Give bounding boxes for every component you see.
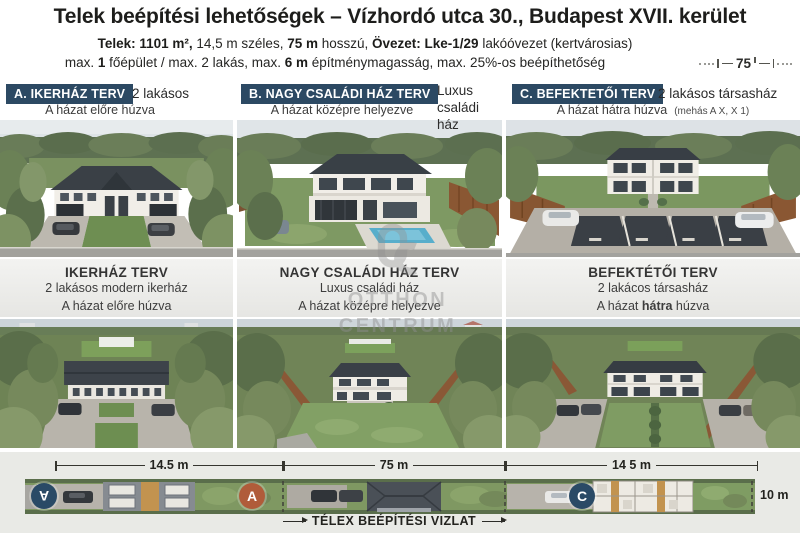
- plan-b-caption-line1: Luxus családi ház: [237, 280, 502, 298]
- caption-arrow-left: [283, 521, 306, 522]
- plan-b-header: B. NAGY CSALÁDI HÁZ TERV Luxus családi h…: [237, 80, 502, 120]
- plot-spec-line1: Telek: 1101 m², 14,5 m széles, 75 m hoss…: [0, 36, 730, 51]
- page-title: Telek beépítési lehetőségek – Vízhordó u…: [0, 5, 800, 29]
- plan-column-b: B. NAGY CSALÁDI HÁZ TERV Luxus családi h…: [237, 80, 502, 448]
- dotted-leader: [777, 63, 792, 65]
- plan-c-subline: A házat hátra húzva(mehás A X, X 1): [506, 103, 800, 117]
- dotted-leader: [699, 63, 714, 65]
- plan-column-a: A. IKERHÁZ TERV 2 lakásos A házat előre …: [0, 80, 233, 448]
- tick-mark: [773, 59, 775, 68]
- plot-strip-aerial-image: [25, 479, 755, 514]
- plan-c-tagline: 2 lakásos társasház: [658, 86, 777, 101]
- plan-a-caption: IKERHÁZ TERV 2 lakásos modern ikerház A …: [0, 257, 233, 319]
- dimension-depth-value: 10 m: [760, 488, 789, 502]
- dimension-middle-value: 75 m: [375, 458, 414, 472]
- plan-b-caption-title: NAGY CSALÁDI HÁZ TERV: [237, 265, 502, 280]
- siteplan-section: 14.5 m 75 m 14 5 m 10 m: [0, 450, 800, 533]
- dimension-line: [722, 63, 733, 64]
- plan-b-render-aerial: [237, 319, 502, 448]
- plan-c-render-street: [506, 120, 800, 257]
- plan-b-render-street: [237, 120, 502, 257]
- infographic-root: Telek beépítési lehetőségek – Vízhordó u…: [0, 0, 800, 533]
- tick-mark: [717, 59, 719, 68]
- plan-b-subline: A házat középre helyezve: [237, 103, 447, 117]
- dimension-value: 75: [736, 56, 751, 71]
- plan-c-caption-line2: A házat hátra húzva: [506, 298, 800, 316]
- plan-a-header: A. IKERHÁZ TERV 2 lakásos A házat előre …: [0, 80, 233, 120]
- plan-c-caption-title: BEFEKTÉTŐI TERV: [506, 265, 800, 280]
- siteplan-caption-text: TÉLEX BEÉPÍTÉSI VIZLAT: [312, 514, 476, 528]
- spec-bold: 6 m: [285, 55, 308, 70]
- plot-badge-a: A: [239, 483, 265, 509]
- plan-c-header: C. BEFEKTETŐI TERV 2 lakásos társasház A…: [506, 80, 800, 120]
- plan-b-badge: B. NAGY CSALÁDI HÁZ TERV: [241, 84, 438, 104]
- plan-column-c: C. BEFEKTETŐI TERV 2 lakásos társasház A…: [506, 80, 800, 448]
- plan-c-caption: BEFEKTÉTŐI TERV 2 lakácos társasház A há…: [506, 257, 800, 319]
- dimension-left-value: 14.5 m: [145, 458, 194, 472]
- dimension-right-segment: 14 5 m: [505, 465, 758, 480]
- plan-a-render-aerial: [0, 319, 233, 448]
- plot-badge-c: C: [569, 483, 595, 509]
- dimension-line: [759, 63, 770, 64]
- duplex-front-aerial-image: [0, 120, 233, 257]
- plot-badge-a-rotated: A: [31, 483, 57, 509]
- plan-b-caption-line2: A házat középre helyezve: [237, 298, 502, 316]
- plan-c-badge: C. BEFEKTETŐI TERV: [512, 84, 663, 104]
- plan-c-caption-line1: 2 lakácos társasház: [506, 280, 800, 298]
- siteplan-caption: TÉLEX BEÉPÍTÉSI VIZLAT: [283, 514, 505, 528]
- spec-bold: Telek: 1101 m²,: [98, 36, 193, 51]
- plan-a-tagline: 2 lakásos: [132, 86, 189, 101]
- investor-building-front-aerial-image: [506, 120, 800, 257]
- dimension-left-segment: 14.5 m: [55, 465, 283, 480]
- spec-bold: 75 m: [287, 36, 318, 51]
- caption-arrow-right: [482, 521, 505, 522]
- family-house-front-aerial-image: [237, 120, 502, 257]
- family-house-top-aerial-image: [237, 319, 502, 448]
- plan-a-subline: A házat előre húzva: [0, 103, 200, 117]
- plan-a-caption-line1: 2 lakásos modern ikerház: [0, 280, 233, 298]
- dimension-right-value: 14 5 m: [607, 458, 656, 472]
- plan-c-render-aerial: [506, 319, 800, 448]
- duplex-top-aerial-image: [0, 319, 233, 448]
- investor-building-top-aerial-image: [506, 319, 800, 448]
- plan-a-render-street: [0, 120, 233, 257]
- width-dimension-annotation: 75: [699, 56, 792, 71]
- dimension-middle-segment: 75 m: [283, 465, 505, 480]
- plan-a-caption-line2: A házat előre húzva: [0, 298, 233, 316]
- plot-spec-line2: max. 1 főépület / max. 2 lakás, max. 6 m…: [0, 55, 670, 70]
- plan-a-badge: A. IKERHÁZ TERV: [6, 84, 133, 104]
- plan-a-caption-title: IKERHÁZ TERV: [0, 265, 233, 280]
- plan-b-caption: NAGY CSALÁDI HÁZ TERV Luxus családi ház …: [237, 257, 502, 319]
- tick-mark: [754, 57, 756, 63]
- plan-c-note: (mehás A X, X 1): [674, 106, 749, 117]
- spec-bold: Övezet: Lke-1/29: [372, 36, 479, 51]
